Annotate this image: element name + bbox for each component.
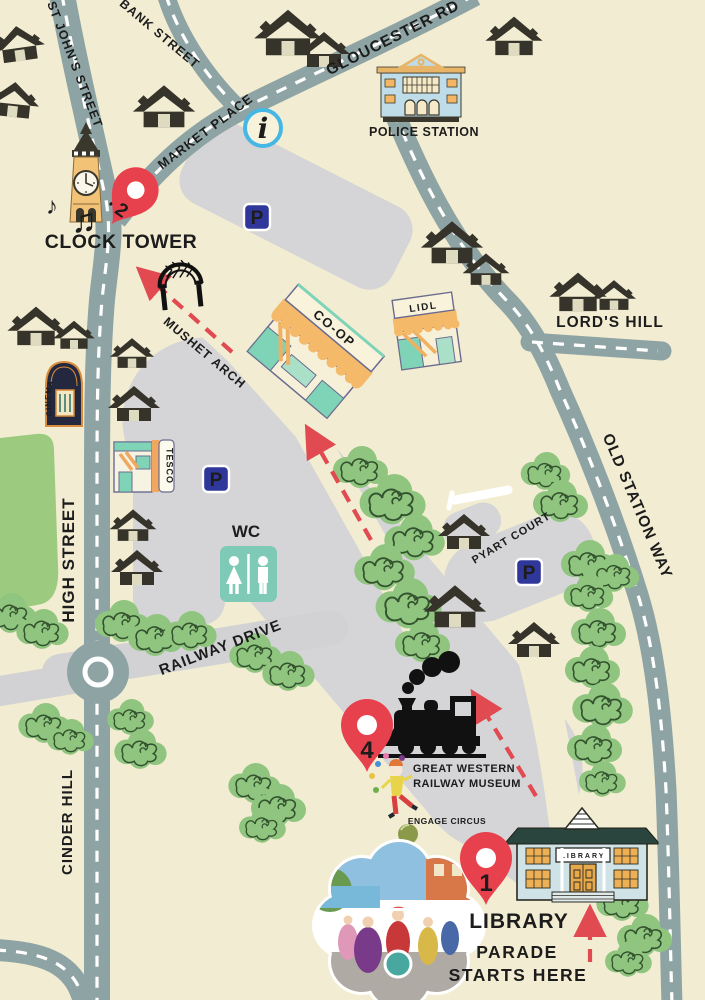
roundabout [67, 641, 129, 703]
parade-callout-line1: PARADE [476, 942, 558, 962]
street-label-lords-hill: LORD'S HILL [556, 314, 664, 331]
parking-sign-station: P [203, 466, 229, 492]
tesco-building: TESCO [114, 440, 175, 492]
poi-label-police-station: POLICE STATION [369, 125, 479, 139]
svg-text:P: P [251, 208, 264, 229]
park-area [0, 434, 58, 612]
tesco-sign-text: TESCO [165, 448, 175, 484]
svg-text:i: i [258, 112, 269, 145]
parking-sign-market: P [244, 204, 270, 230]
street-label-cinder-hill: CINDER HILL [59, 769, 76, 875]
town-map-canvas: ♪ ♫ ♪ CINEMA TESCO [0, 0, 705, 1000]
toilets-icon [220, 546, 277, 602]
svg-text:4: 4 [360, 737, 374, 764]
parking-sign-pyart: P [516, 559, 542, 585]
info-icon: i [245, 110, 281, 146]
svg-text:1: 1 [479, 870, 492, 897]
parade-callout-line2: STARTS HERE [449, 965, 588, 985]
street-label-high-street: HIGH STREET [59, 497, 78, 622]
cinema-building: CINEMA [43, 362, 82, 426]
lidl-building: LIDL [390, 292, 465, 371]
svg-text:♪: ♪ [46, 193, 58, 220]
poi-label-library: LIBRARY [469, 910, 569, 933]
poi-label-museum-line2: RAILWAY MUSEUM [413, 778, 521, 790]
poi-label-clock-tower: CLOCK TOWER [45, 231, 197, 253]
poi-label-wc: WC [232, 522, 260, 541]
svg-text:P: P [523, 563, 536, 584]
poi-label-museum-line1: GREAT WESTERN [413, 763, 515, 775]
poi-label-engage-circus: ENGAGE CIRCUS [408, 816, 486, 826]
svg-text:P: P [210, 470, 223, 491]
library-sign-text: LIBRARY [561, 853, 606, 860]
town-map: ♪ ♫ ♪ CINEMA TESCO [0, 0, 705, 1000]
